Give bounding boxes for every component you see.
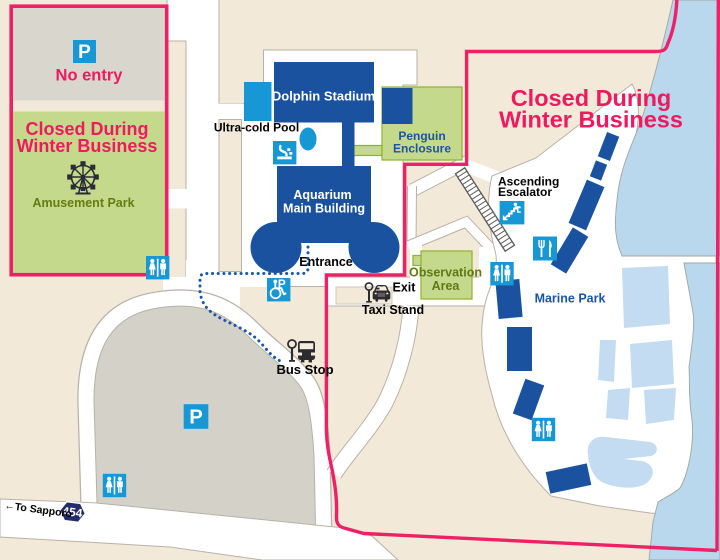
svg-text:Escalator: Escalator — [498, 185, 552, 199]
svg-text:Marine Park: Marine Park — [535, 292, 606, 306]
svg-text:Entrance: Entrance — [299, 255, 353, 269]
svg-text:Amusement Park: Amusement Park — [32, 196, 134, 210]
svg-text:Exit: Exit — [393, 281, 417, 295]
svg-text:Dolphin Stadium: Dolphin Stadium — [272, 89, 375, 104]
svg-text:Winter Business: Winter Business — [17, 136, 158, 156]
svg-text:Ultra-cold Pool: Ultra-cold Pool — [214, 121, 299, 135]
svg-text:Main Building: Main Building — [283, 202, 365, 216]
svg-text:Winter Business: Winter Business — [499, 107, 683, 133]
svg-text:Taxi Stand: Taxi Stand — [362, 303, 424, 317]
svg-text:Enclosure: Enclosure — [393, 141, 451, 155]
svg-text:No entry: No entry — [56, 67, 124, 85]
svg-text:Observation: Observation — [409, 266, 482, 280]
svg-text:Area: Area — [432, 279, 461, 293]
svg-text:Aquarium: Aquarium — [293, 188, 351, 202]
svg-text:Bus Stop: Bus Stop — [276, 362, 333, 377]
